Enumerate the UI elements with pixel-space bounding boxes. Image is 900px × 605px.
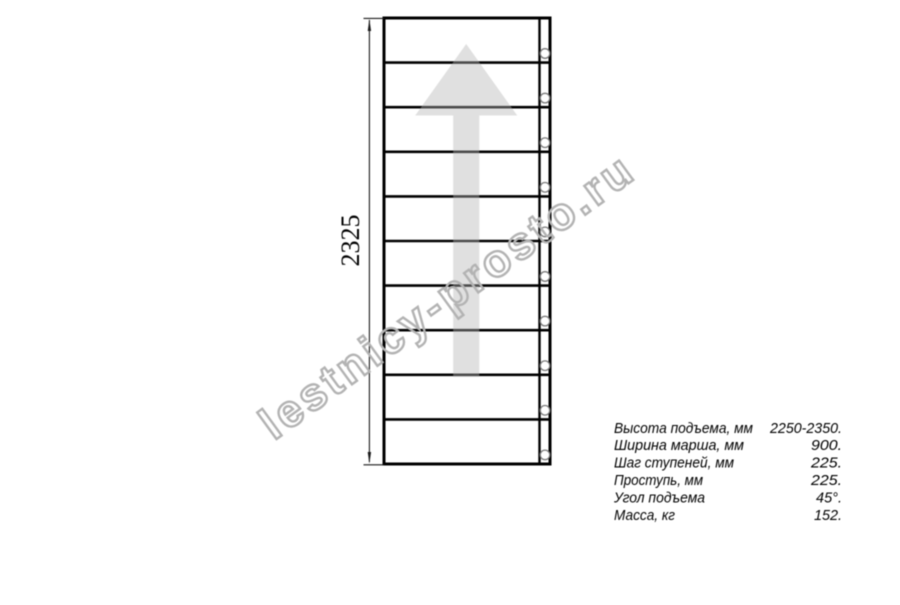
svg-text:Проступь, мм: Проступь, мм <box>614 472 703 489</box>
svg-text:Угол подъема: Угол подъема <box>613 489 705 506</box>
svg-text:2250-2350.: 2250-2350. <box>769 420 842 437</box>
svg-text:Высота подъема, мм: Высота подъема, мм <box>614 420 753 437</box>
svg-text:225.: 225. <box>810 455 842 472</box>
svg-text:45°.: 45°. <box>816 489 842 506</box>
svg-text:900.: 900. <box>811 437 842 454</box>
svg-text:225.: 225. <box>810 472 842 489</box>
svg-text:2325: 2325 <box>336 215 365 267</box>
svg-text:Шаг ступеней, мм: Шаг ступеней, мм <box>614 455 734 472</box>
svg-text:152.: 152. <box>814 507 842 524</box>
svg-text:Ширина марша, мм: Ширина марша, мм <box>614 437 744 454</box>
svg-text:Масса, кг: Масса, кг <box>614 507 676 524</box>
